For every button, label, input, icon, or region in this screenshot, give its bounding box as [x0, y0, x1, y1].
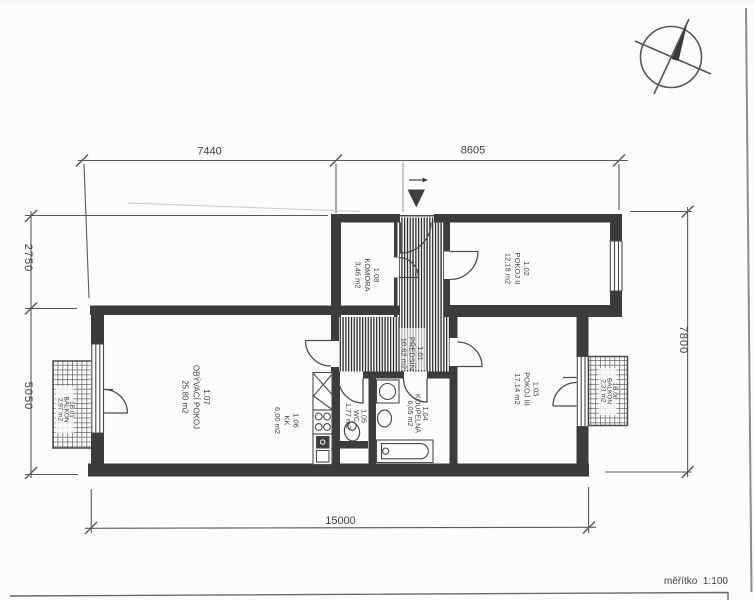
svg-text:2750: 2750 — [22, 244, 34, 272]
svg-text:7800: 7800 — [677, 326, 689, 354]
svg-text:8605: 8605 — [461, 145, 485, 157]
svg-text:7440: 7440 — [197, 146, 221, 158]
svg-text:5050: 5050 — [22, 382, 34, 410]
svg-text:měřítko 1:100: měřítko 1:100 — [664, 576, 728, 587]
svg-text:15000: 15000 — [325, 515, 356, 527]
